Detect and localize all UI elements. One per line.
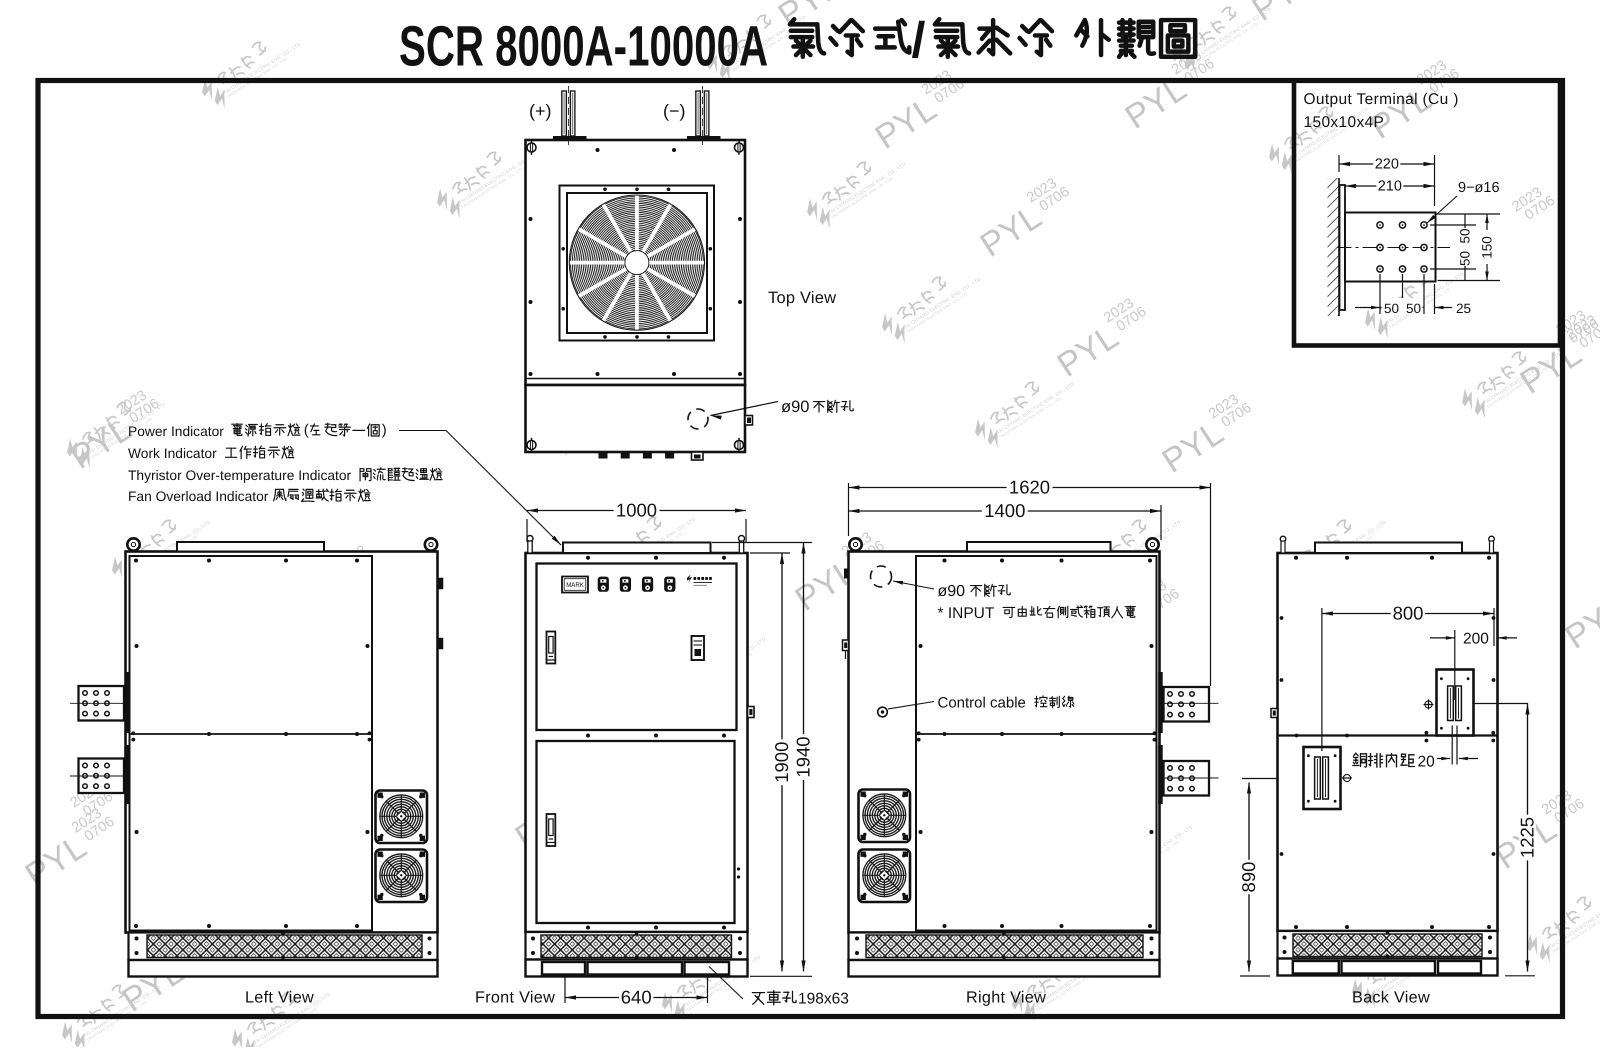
svg-text:MARK: MARK [566, 582, 584, 589]
svg-text:): ) [382, 423, 387, 439]
svg-text:ø90: ø90 [938, 583, 966, 600]
svg-text:220: 220 [1375, 157, 1399, 173]
svg-text:1400: 1400 [984, 500, 1025, 521]
svg-text:SCR 8000A-10000A: SCR 8000A-10000A [399, 15, 768, 79]
svg-text:1000: 1000 [616, 499, 657, 520]
svg-text:50: 50 [1384, 301, 1399, 316]
svg-text:800: 800 [1393, 602, 1424, 623]
svg-text:890: 890 [1238, 862, 1259, 893]
svg-text:1620: 1620 [1009, 476, 1050, 497]
svg-text:Left View: Left View [245, 989, 314, 1007]
svg-text:1940: 1940 [792, 736, 813, 777]
svg-text:150: 150 [1480, 236, 1495, 259]
svg-text:1225: 1225 [1516, 817, 1537, 858]
svg-text:198x63: 198x63 [798, 991, 849, 1008]
svg-text:Output Terminal (Cu ): Output Terminal (Cu ) [1304, 91, 1459, 108]
svg-text:20: 20 [1418, 754, 1436, 771]
svg-text:(−): (−) [663, 101, 686, 121]
svg-text:Control cable: Control cable [938, 695, 1026, 712]
svg-text:25: 25 [1456, 301, 1471, 316]
svg-text:Fan Overload Indicator: Fan Overload Indicator [128, 489, 269, 504]
svg-text:(+): (+) [529, 101, 552, 121]
svg-text:Power Indicator: Power Indicator [128, 424, 224, 439]
svg-text:Work Indicator: Work Indicator [128, 446, 217, 461]
svg-text:ø90: ø90 [781, 398, 809, 416]
svg-text:Thyristor Over-temperature Ind: Thyristor Over-temperature Indicator [128, 468, 352, 483]
svg-text:Front View: Front View [475, 989, 555, 1007]
svg-text:1900: 1900 [771, 742, 792, 783]
svg-text:* INPUT: * INPUT [938, 605, 995, 622]
svg-text:50: 50 [1458, 251, 1473, 266]
svg-text:210: 210 [1378, 179, 1402, 195]
svg-text:Right View: Right View [966, 989, 1046, 1007]
svg-text:9−ø16: 9−ø16 [1458, 180, 1500, 196]
svg-text:200: 200 [1463, 631, 1489, 648]
svg-text:50: 50 [1458, 228, 1473, 243]
svg-text:50: 50 [1406, 301, 1421, 316]
svg-text:(: ( [304, 423, 309, 439]
svg-text:/: / [912, 12, 926, 68]
svg-text:150x10x4P: 150x10x4P [1304, 114, 1385, 131]
svg-text:Back View: Back View [1352, 989, 1430, 1007]
svg-text:Top View: Top View [768, 289, 836, 307]
svg-text:640: 640 [621, 986, 652, 1007]
